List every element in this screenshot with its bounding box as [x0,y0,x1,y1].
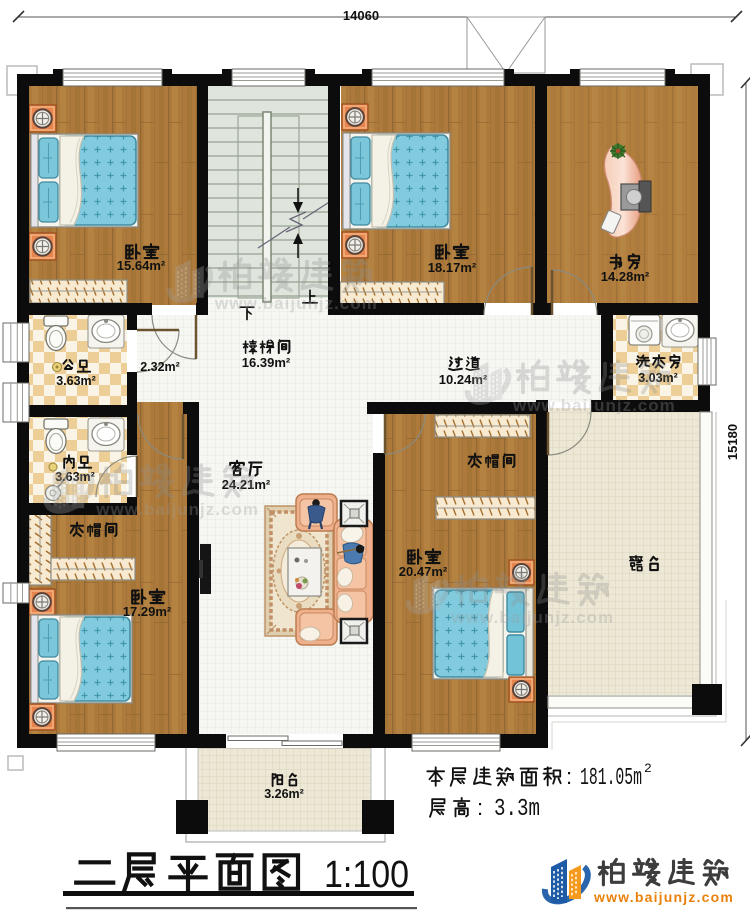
svg-text:www.baijunjz.com: www.baijunjz.com [512,396,676,415]
svg-text:3.3m: 3.3m [494,796,540,823]
svg-text:2.32m²: 2.32m² [140,360,180,374]
svg-text:3.26m²: 3.26m² [264,787,304,801]
svg-text:16.39m²: 16.39m² [242,355,291,370]
svg-text:15180: 15180 [725,424,740,460]
svg-text::: : [566,764,572,789]
svg-text:www.baijunjz.com: www.baijunjz.com [214,294,378,313]
svg-text:www.baijunjz.com: www.baijunjz.com [95,500,259,519]
svg-text:2: 2 [644,761,652,776]
svg-text:www.baijunjz.com: www.baijunjz.com [450,608,614,627]
svg-text:14060: 14060 [343,8,379,23]
svg-text:18.17m²: 18.17m² [428,260,477,275]
svg-text:14.28m²: 14.28m² [601,269,650,284]
svg-text::: : [477,795,483,820]
svg-text:1:100: 1:100 [324,854,409,896]
svg-text:17.29m²: 17.29m² [123,604,172,619]
svg-text:181.05m: 181.05m [580,765,642,792]
svg-text:15.64m²: 15.64m² [117,258,166,273]
svg-text:3.63m²: 3.63m² [56,374,96,388]
svg-text:www.baijunjz.com: www.baijunjz.com [593,889,734,905]
